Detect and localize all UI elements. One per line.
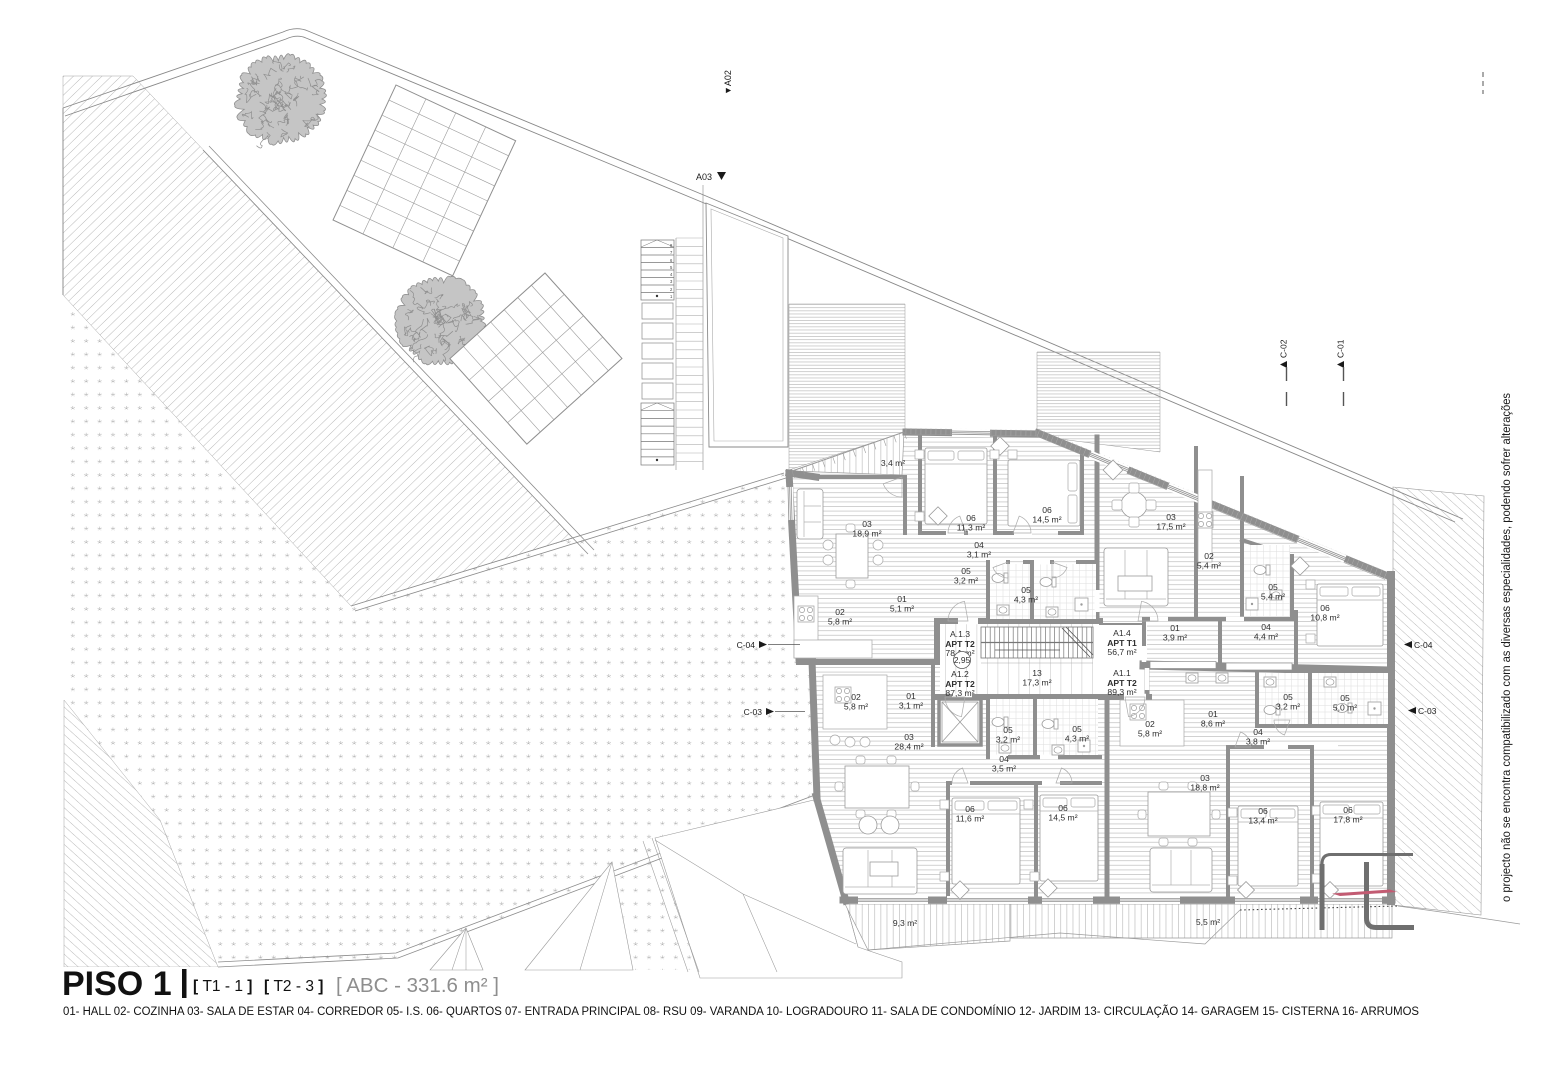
- svg-text:PISO 1: PISO 1: [62, 965, 172, 1003]
- svg-text:C-03: C-03: [744, 707, 763, 717]
- svg-text:C-03: C-03: [1418, 706, 1437, 716]
- svg-text:5,5 m²: 5,5 m²: [1196, 917, 1220, 927]
- svg-text:01- HALL 02- COZINHA 03- SALA: 01- HALL 02- COZINHA 03- SALA DE ESTAR 0…: [63, 1003, 1419, 1018]
- svg-text:C-04: C-04: [1414, 640, 1433, 650]
- svg-text:2,95: 2,95: [954, 655, 971, 665]
- svg-text:[ ABC - 331.6 m² ]: [ ABC - 331.6 m² ]: [336, 974, 499, 997]
- svg-text:[ T1 - 1 ]: [ T1 - 1 ]: [193, 978, 252, 995]
- svg-text:C-04: C-04: [737, 640, 756, 650]
- svg-text:A1.1: A1.1: [1113, 668, 1131, 678]
- svg-text:56,7 m²: 56,7 m²: [1107, 647, 1136, 657]
- svg-text:87,3 m²: 87,3 m²: [945, 688, 974, 698]
- svg-text:o projecto não se encontra com: o projecto não se encontra compatibiliza…: [1499, 393, 1513, 902]
- svg-text:A1.2: A1.2: [951, 669, 969, 679]
- svg-text:9,3 m²: 9,3 m²: [893, 918, 917, 928]
- svg-text:A03: A03: [696, 172, 712, 182]
- svg-text:▼A02: ▼A02: [723, 70, 733, 95]
- svg-text:A1.4: A1.4: [1113, 628, 1131, 638]
- svg-text:3,4 m²: 3,4 m²: [881, 458, 905, 468]
- svg-text:[ T2 - 3 ]: [ T2 - 3 ]: [264, 978, 323, 995]
- svg-text:C-02: C-02: [1279, 339, 1289, 358]
- svg-text:A.1.3: A.1.3: [950, 629, 970, 639]
- svg-text:C-01: C-01: [1336, 339, 1346, 358]
- svg-text:89,3 m²: 89,3 m²: [1107, 687, 1136, 697]
